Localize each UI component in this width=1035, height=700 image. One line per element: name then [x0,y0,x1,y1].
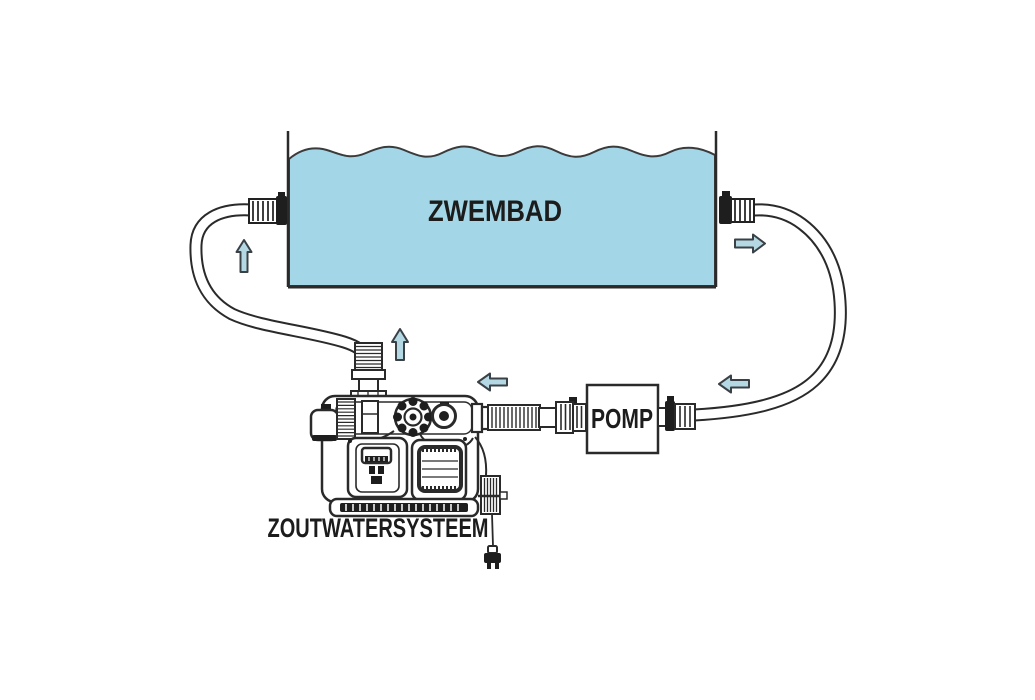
pool-fitting-right [719,191,754,224]
arrow-left-icon-pump-inlet [719,376,749,393]
vent-panel [412,440,466,500]
pump-assembly: POMP [488,385,695,453]
diagram-canvas: ZWEMBAD [0,0,1035,700]
pump-label: POMP [591,403,653,434]
pool-label: ZWEMBAD [428,195,562,228]
saltwater-system-unit [311,396,490,516]
pool-tank: ZWEMBAD [288,131,716,287]
arrow-right-icon-pool-outlet [735,235,765,253]
saltwater-system-label: ZOUTWATERSYSTEEM [268,513,489,543]
arrow-left-icon-system-inlet [478,374,507,391]
valve-wheel [393,397,433,437]
pool-system-diagram: ZWEMBAD [0,0,1035,700]
arrow-up-icon-left-riser [237,240,252,272]
power-plug-icon [484,546,501,569]
power-cord [475,437,507,569]
pool-fitting-left [249,192,287,225]
system-inlet-assembly [351,343,386,401]
control-display-panel [348,438,407,497]
arrow-up-icon-above-system [392,329,408,360]
round-cap [433,402,456,428]
